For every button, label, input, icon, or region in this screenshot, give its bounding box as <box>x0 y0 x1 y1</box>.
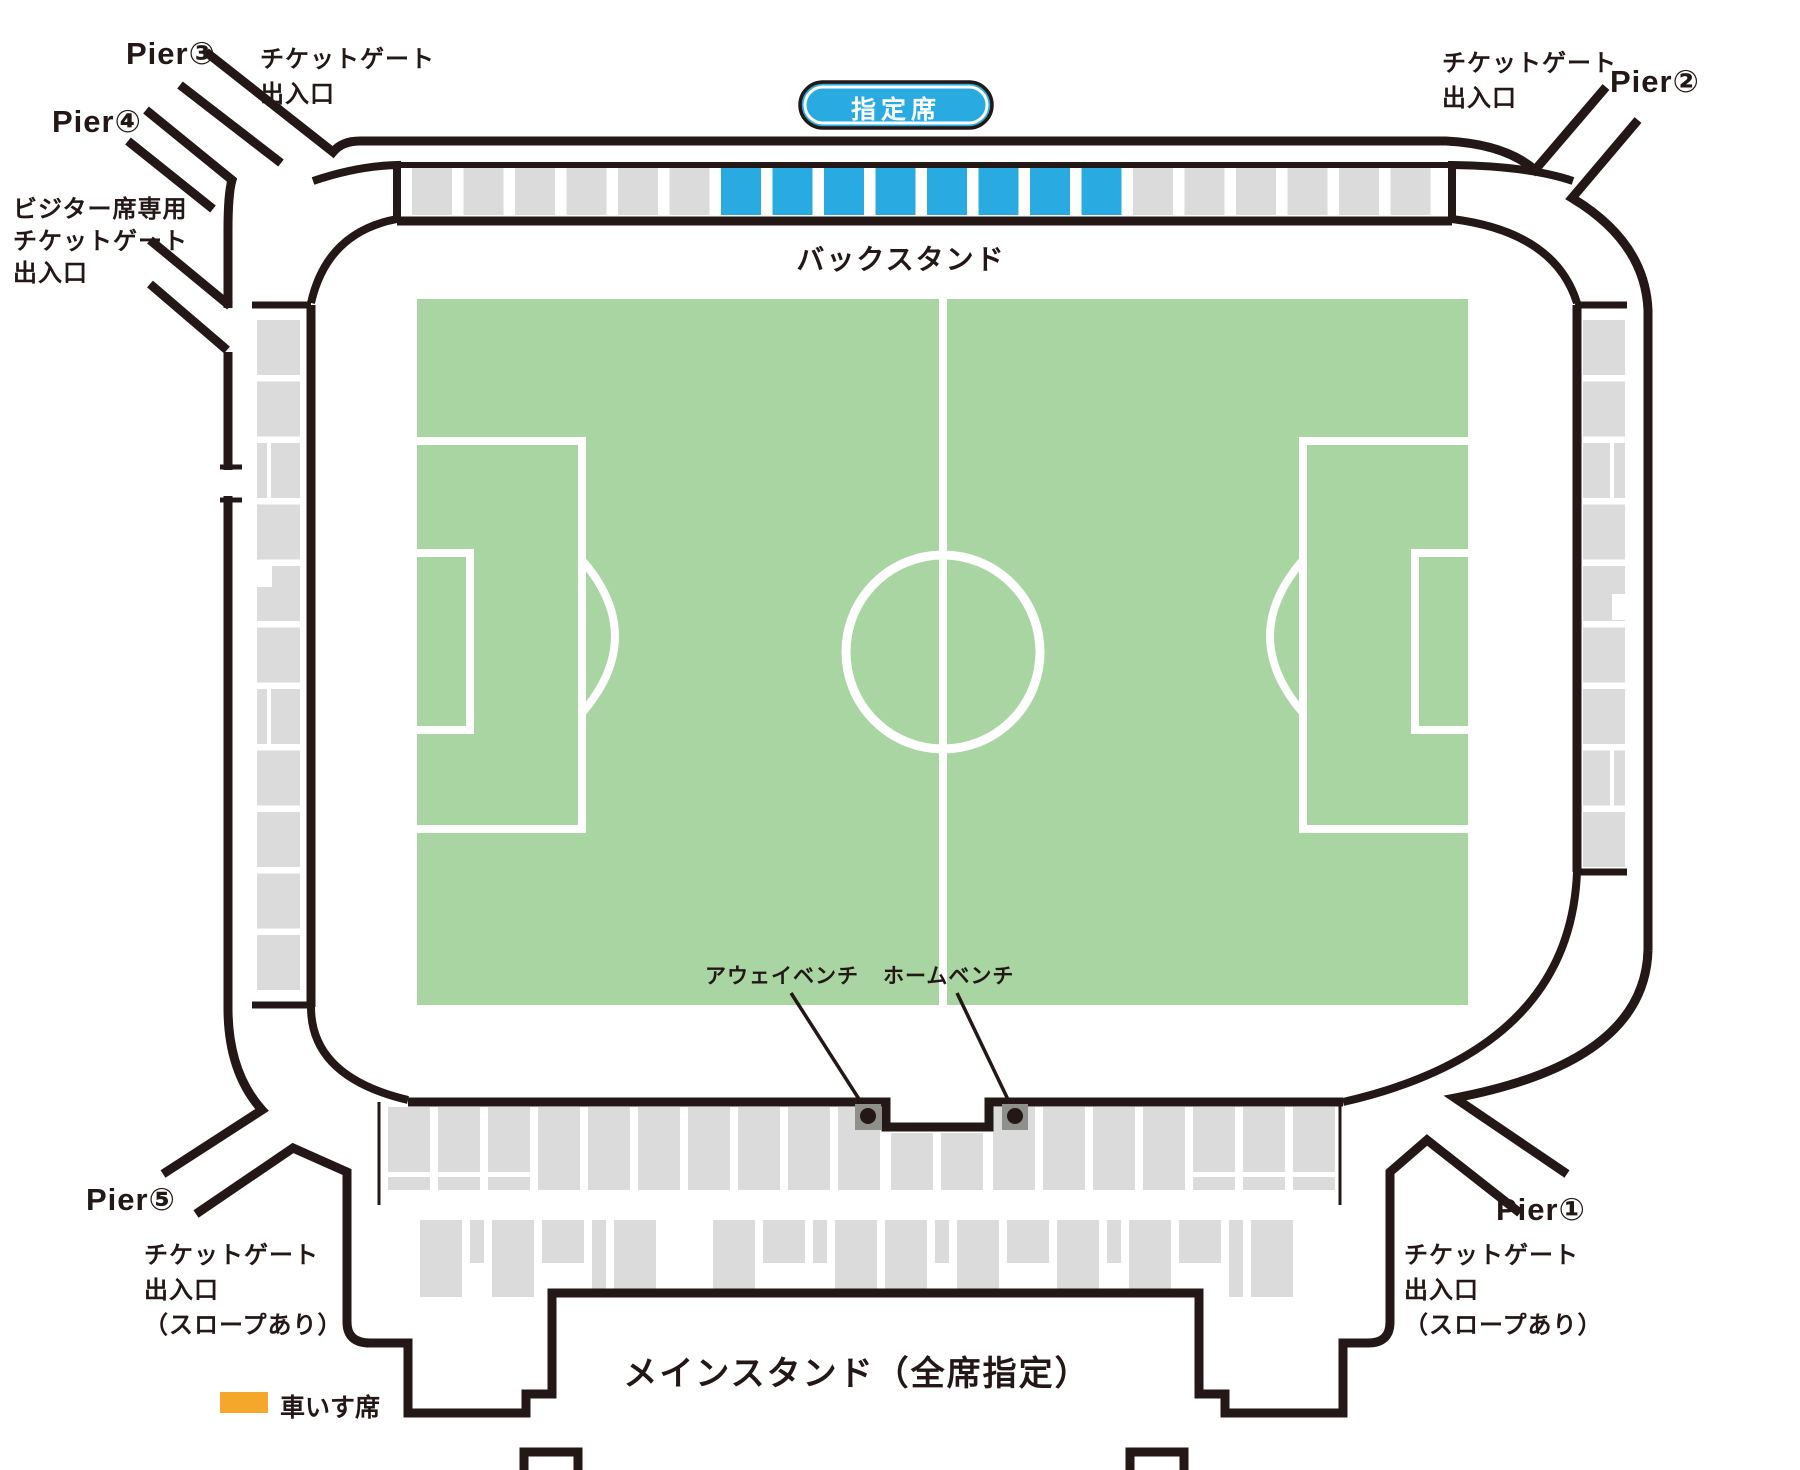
reserved-seat-badge-label: 指定席 <box>800 90 992 126</box>
seat-block <box>1583 812 1625 867</box>
home-bench-label: ホームベンチ <box>883 960 1014 990</box>
seat-block <box>1293 1107 1335 1172</box>
seat-block <box>470 1220 484 1263</box>
seat-block <box>567 168 607 215</box>
seat-block <box>1229 1220 1243 1297</box>
seat-block <box>1133 168 1173 215</box>
reserved-seat-block <box>927 168 967 215</box>
seat-block <box>492 1220 534 1297</box>
seat-block <box>1043 1107 1085 1190</box>
seat-block <box>438 1177 480 1190</box>
seat-block <box>592 1220 606 1297</box>
seat-block <box>688 1107 730 1190</box>
seat-block <box>1193 1107 1235 1172</box>
seat-block <box>1293 1177 1335 1190</box>
seat-block <box>763 1220 805 1263</box>
pier5-label: Pier⑤ <box>86 1182 176 1218</box>
seat-block <box>638 1107 680 1190</box>
seat-block <box>1143 1107 1185 1190</box>
seat-block <box>1185 168 1225 215</box>
seat-block <box>257 935 300 990</box>
seat-block <box>885 1220 927 1297</box>
seat-block <box>257 320 300 375</box>
seat-block <box>257 812 300 867</box>
seat-block <box>588 1107 630 1190</box>
seat-block <box>1007 1220 1049 1263</box>
corner-fan-top-right <box>1452 165 1577 303</box>
left-wall-gate-opening <box>220 467 242 500</box>
seat-block <box>1614 751 1625 806</box>
seat-block <box>1288 168 1328 215</box>
seat-block <box>1251 1220 1293 1297</box>
seat-block <box>1193 1177 1235 1190</box>
seat-block <box>388 1177 430 1190</box>
pitch <box>417 299 1468 1005</box>
seat-block <box>438 1107 480 1172</box>
pier4-label: Pier④ <box>52 104 142 140</box>
seat-block <box>1057 1220 1099 1297</box>
seat-block <box>412 168 452 215</box>
seat-block <box>257 505 300 560</box>
reserved-seat-block <box>979 168 1019 215</box>
reserved-seat-block <box>1030 168 1070 215</box>
seat-block <box>1107 1220 1121 1263</box>
seat-block <box>1583 320 1625 375</box>
corner-fan-bottom-left <box>311 1007 408 1100</box>
seat-block <box>271 443 300 498</box>
seat-block <box>420 1220 462 1297</box>
reserved-seat-block <box>721 168 761 215</box>
seat-block <box>957 1220 999 1297</box>
seat-block <box>891 1133 933 1190</box>
reserved-seat-block <box>1082 168 1122 215</box>
gate-bottom-right-label: チケットゲート出入口（スロープあり） <box>1404 1238 1603 1343</box>
seat-block <box>538 1107 580 1190</box>
gate-top-left-label: チケットゲート出入口 <box>260 42 435 112</box>
seat-block <box>670 168 710 215</box>
seat-block <box>257 382 300 437</box>
seat-block <box>935 1220 949 1263</box>
seat-block <box>713 1220 755 1297</box>
seat-block <box>1236 168 1276 215</box>
seat-block <box>1583 505 1625 560</box>
main-stand-label: メインスタンド（全席指定） <box>557 1346 1157 1395</box>
seat-block <box>488 1107 530 1172</box>
back-stand-label: バックスタンド <box>701 238 1101 278</box>
away-bench-label: アウェイベンチ <box>705 960 859 990</box>
seat-block <box>618 168 658 215</box>
seat-block <box>542 1220 584 1263</box>
seat-block <box>1583 628 1625 683</box>
reserved-seat-block <box>824 168 864 215</box>
seat-block-notch <box>257 566 272 587</box>
seat-block-notch <box>1612 594 1625 620</box>
seat-block <box>257 689 267 744</box>
pier2-label: Pier② <box>1610 64 1700 100</box>
corner-fan-top-left <box>311 165 397 303</box>
seat-block <box>1391 168 1431 215</box>
seat-block <box>1583 443 1610 498</box>
seat-block <box>614 1220 656 1297</box>
wheelchair-legend-swatch <box>220 1392 268 1413</box>
reserved-seat-block <box>876 168 916 215</box>
seat-block <box>738 1107 780 1190</box>
seat-block <box>1243 1177 1285 1190</box>
stadium-seating-map: Pier③ チケットゲート出入口 Pier④ ビジター席専用チケットゲート出入口… <box>0 0 1800 1470</box>
seat-block <box>271 689 300 744</box>
seat-block <box>1129 1220 1171 1297</box>
seat-block <box>464 168 504 215</box>
gate-bottom-left-label: チケットゲート出入口（スロープあり） <box>144 1238 343 1343</box>
reserved-seat-block <box>773 168 813 215</box>
seat-block <box>788 1107 830 1190</box>
seat-block <box>941 1133 983 1190</box>
seat-block <box>1093 1107 1135 1190</box>
gate-top-right-label: チケットゲート出入口 <box>1442 46 1617 116</box>
seat-block <box>835 1220 877 1297</box>
seat-block <box>1243 1107 1285 1172</box>
pier3-label: Pier③ <box>126 36 216 72</box>
bottom-entrance-steps <box>524 1452 1184 1470</box>
seat-block <box>257 874 300 929</box>
seat-block <box>1339 168 1379 215</box>
seat-block <box>257 751 300 806</box>
seat-block <box>1583 751 1610 806</box>
seat-block <box>515 168 555 215</box>
away-bench-dot <box>860 1108 876 1124</box>
seat-block <box>1614 443 1625 498</box>
home-bench-dot <box>1007 1108 1023 1124</box>
seat-block <box>257 443 267 498</box>
wheelchair-legend-label: 車いす席 <box>280 1388 380 1424</box>
seat-block <box>813 1220 827 1263</box>
seat-block <box>388 1107 430 1172</box>
seat-block <box>1583 382 1625 437</box>
visitor-gate-label: ビジター席専用チケットゲート出入口 <box>13 194 188 290</box>
seat-block <box>488 1177 530 1190</box>
seat-block <box>257 628 300 683</box>
seat-block <box>1179 1220 1221 1263</box>
pier1-label: Pier① <box>1496 1192 1586 1228</box>
seat-block <box>1583 689 1625 744</box>
